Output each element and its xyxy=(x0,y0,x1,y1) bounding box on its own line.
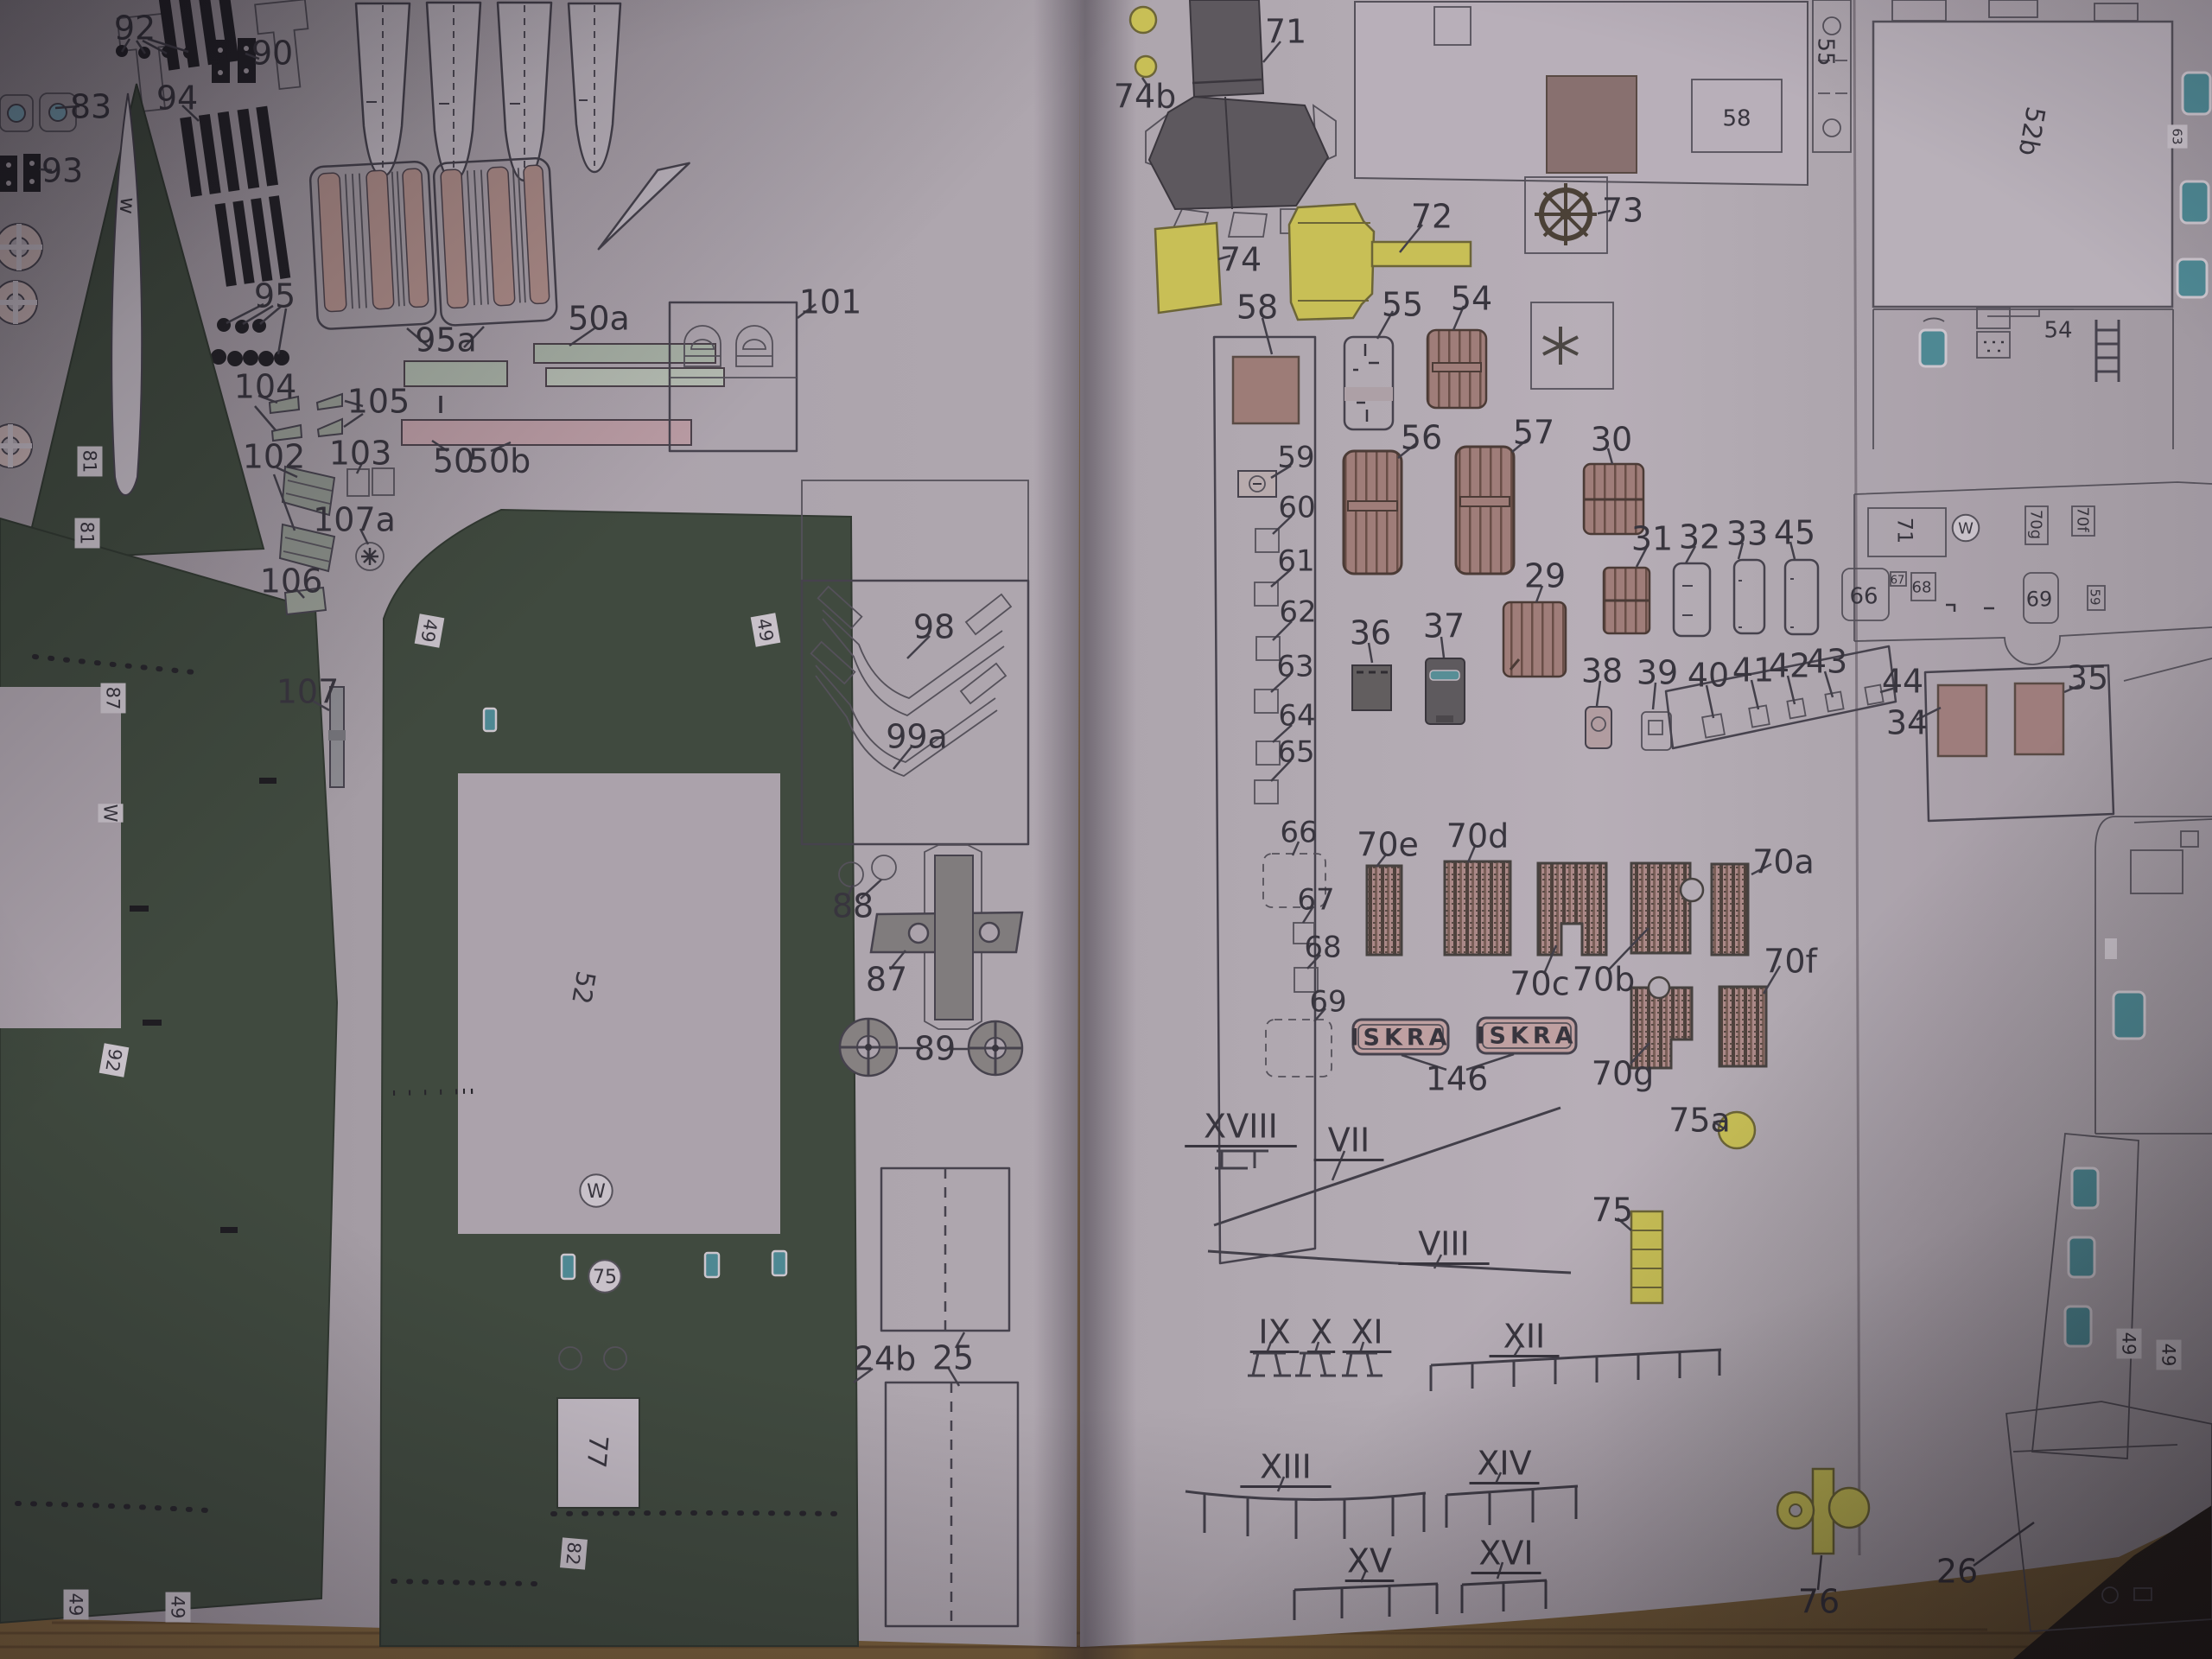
svg-text:146: 146 xyxy=(1426,1060,1489,1098)
svg-text:59: 59 xyxy=(1277,440,1314,474)
svg-text:W: W xyxy=(587,1181,606,1203)
part-label-56: 56 xyxy=(1401,419,1442,457)
svg-text:72: 72 xyxy=(1411,198,1452,236)
part-label-92: 92 xyxy=(99,1043,130,1077)
part-label-71: 71 xyxy=(1265,13,1306,51)
svg-text:77: 77 xyxy=(581,1433,613,1469)
part-label-24b: 24b xyxy=(854,1340,916,1378)
svg-text:VII: VII xyxy=(1328,1122,1370,1160)
part-label-52: 52 xyxy=(565,969,601,1007)
part-label-29: 29 xyxy=(1524,557,1566,595)
center-gutter-shadow xyxy=(1033,0,1137,1659)
svg-text:93: 93 xyxy=(41,152,83,190)
part-label-70d: 70d xyxy=(1446,817,1509,855)
part-label-70g: 70g xyxy=(2027,510,2045,539)
part-label-70f: 70f xyxy=(1764,943,1818,981)
part-label-69: 69 xyxy=(2026,588,2053,612)
svg-text:49: 49 xyxy=(65,1593,86,1617)
svg-text:57: 57 xyxy=(1513,414,1554,452)
part-label-82: 82 xyxy=(560,1537,588,1569)
part-label-30: 30 xyxy=(1591,421,1632,459)
svg-text:105: 105 xyxy=(347,383,410,421)
part-label-63: 63 xyxy=(1276,649,1313,683)
part-label-104: 104 xyxy=(234,368,297,406)
part-label-66: 66 xyxy=(1280,815,1317,849)
svg-text:92: 92 xyxy=(114,10,156,48)
part-label-37: 37 xyxy=(1423,607,1465,645)
part-label-55: 55 xyxy=(1813,37,1839,66)
svg-text:75a: 75a xyxy=(1669,1102,1731,1140)
part-label-40: 40 xyxy=(1688,657,1729,695)
svg-text:90: 90 xyxy=(251,35,293,73)
photo-of-model-kit-sheets: 92908393949595a104105102103106107107a50a… xyxy=(0,0,2212,1659)
part-label-58: 58 xyxy=(1236,289,1278,327)
svg-text:30: 30 xyxy=(1591,421,1632,459)
svg-text:70g: 70g xyxy=(1592,1055,1654,1093)
svg-text:35: 35 xyxy=(2067,659,2108,697)
svg-text:71: 71 xyxy=(1892,518,1916,544)
part-label-49: 49 xyxy=(166,1592,191,1623)
svg-text:104: 104 xyxy=(234,368,297,406)
part-56-door xyxy=(1344,451,1402,574)
svg-text:29: 29 xyxy=(1524,557,1566,595)
svg-text:XVIII: XVIII xyxy=(1204,1108,1278,1146)
part-label-34: 34 xyxy=(1886,704,1928,742)
part-label-66: 66 xyxy=(1849,583,1878,609)
part-label-106: 106 xyxy=(260,563,323,601)
part-label-57: 57 xyxy=(1513,414,1554,452)
svg-text:68: 68 xyxy=(1912,578,1932,596)
svg-text:XV: XV xyxy=(1347,1542,1392,1580)
svg-text:ISKRA: ISKRA xyxy=(1476,1023,1577,1050)
svg-text:50b: 50b xyxy=(468,442,531,480)
part-label-70c: 70c xyxy=(1510,965,1569,1003)
part-label-101: 101 xyxy=(799,283,862,321)
part-label-X: X xyxy=(1307,1313,1335,1352)
part-label-83: 83 xyxy=(70,88,111,126)
part-57-door xyxy=(1456,447,1514,574)
sheet-drawing: 92908393949595a104105102103106107107a50a… xyxy=(0,0,2212,1659)
far-right-windows-column-top xyxy=(2177,73,2210,297)
part-label-58: 58 xyxy=(1722,105,1751,131)
svg-text:60: 60 xyxy=(1278,490,1315,524)
part-label-26: 26 xyxy=(1936,1553,1978,1591)
part-label-98: 98 xyxy=(913,608,955,646)
svg-text:65: 65 xyxy=(1277,734,1314,769)
svg-text:103: 103 xyxy=(329,435,392,473)
part-label-44: 44 xyxy=(1882,663,1923,701)
part-label-107a: 107a xyxy=(313,501,396,539)
part-label-90: 90 xyxy=(251,35,293,73)
svg-text:95: 95 xyxy=(254,277,296,315)
svg-text:102: 102 xyxy=(243,438,306,476)
svg-text:24b: 24b xyxy=(854,1340,916,1378)
part-label-60: 60 xyxy=(1278,490,1315,524)
svg-text:75: 75 xyxy=(593,1267,617,1288)
svg-text:107: 107 xyxy=(276,673,340,711)
part-label-105: 105 xyxy=(347,383,410,421)
svg-text:66: 66 xyxy=(1849,583,1878,609)
svg-text:89: 89 xyxy=(914,1030,956,1068)
part-label-93: 93 xyxy=(41,152,83,190)
part-label-77: 77 xyxy=(581,1433,613,1469)
svg-text:87: 87 xyxy=(102,687,123,710)
svg-text:63: 63 xyxy=(2170,128,2185,144)
svg-text:95a: 95a xyxy=(415,321,477,359)
part-59-plate xyxy=(1238,471,1276,497)
part-label-55: 55 xyxy=(1382,286,1423,324)
svg-text:44: 44 xyxy=(1882,663,1923,701)
svg-text:49: 49 xyxy=(416,618,441,644)
part-75-stack xyxy=(1631,1211,1662,1303)
svg-text:40: 40 xyxy=(1688,657,1729,695)
svg-text:94: 94 xyxy=(156,79,198,118)
part-label-69: 69 xyxy=(1309,984,1346,1019)
part-label-59: 59 xyxy=(2088,588,2103,605)
svg-text:64: 64 xyxy=(1278,698,1315,733)
svg-text:81: 81 xyxy=(76,522,97,545)
part-label-74b: 74b xyxy=(1114,78,1176,116)
svg-text:69: 69 xyxy=(1309,984,1346,1019)
part-label-39: 39 xyxy=(1637,654,1678,692)
svg-text:70c: 70c xyxy=(1510,965,1569,1003)
part-label-76: 76 xyxy=(1798,1583,1840,1621)
svg-text:52: 52 xyxy=(565,969,601,1007)
part-label-62: 62 xyxy=(1279,594,1316,629)
deck-piece-52 xyxy=(380,510,858,1646)
svg-text:W: W xyxy=(1958,519,1974,537)
superstructure-sheet xyxy=(1355,2,1808,185)
part-36-box xyxy=(1352,665,1391,710)
svg-text:81: 81 xyxy=(79,450,99,474)
svg-text:w: w xyxy=(115,196,141,215)
svg-text:49: 49 xyxy=(753,617,777,643)
svg-text:VIII: VIII xyxy=(1418,1225,1470,1263)
svg-text:67: 67 xyxy=(1297,882,1334,917)
part-label-31: 31 xyxy=(1631,520,1673,558)
svg-text:49: 49 xyxy=(2158,1344,2178,1367)
svg-text:38: 38 xyxy=(1581,652,1623,690)
part-label-74: 74 xyxy=(1220,241,1262,279)
svg-text:101: 101 xyxy=(799,283,862,321)
svg-text:68: 68 xyxy=(1304,930,1341,964)
svg-text:74: 74 xyxy=(1220,241,1262,279)
svg-text:106: 106 xyxy=(260,563,323,601)
svg-text:70a: 70a xyxy=(1752,843,1815,881)
part-label-49: 49 xyxy=(64,1590,89,1620)
part-label-36: 36 xyxy=(1350,614,1391,652)
part-label-42: 42 xyxy=(1769,647,1810,685)
part-label-64: 64 xyxy=(1278,698,1315,733)
part-label-70f: 70f xyxy=(2074,506,2092,532)
part-label-103: 103 xyxy=(329,435,392,473)
svg-text:59: 59 xyxy=(2088,588,2103,605)
svg-text:70f: 70f xyxy=(2074,506,2092,532)
part-label-70a: 70a xyxy=(1752,843,1815,881)
part-29-hatch xyxy=(1503,602,1566,677)
part-label-49: 49 xyxy=(415,613,445,647)
part-label-59: 59 xyxy=(1277,440,1314,474)
svg-text:50a: 50a xyxy=(568,300,630,338)
svg-text:82: 82 xyxy=(562,1541,584,1567)
svg-text:92: 92 xyxy=(101,1047,125,1073)
part-label-54: 54 xyxy=(1451,280,1492,318)
svg-text:33: 33 xyxy=(1726,515,1768,553)
part-label-68: 68 xyxy=(1912,578,1932,596)
svg-text:58: 58 xyxy=(1722,105,1751,131)
part-label-25: 25 xyxy=(932,1339,974,1377)
part-label-XIV: XIV xyxy=(1470,1445,1540,1484)
part-label-65: 65 xyxy=(1277,734,1314,769)
part-31-hatch xyxy=(1604,568,1649,633)
part-label-146: 146 xyxy=(1426,1060,1489,1098)
part-label-95a: 95a xyxy=(415,321,477,359)
part-label-75a: 75a xyxy=(1669,1102,1731,1140)
svg-text:26: 26 xyxy=(1936,1553,1978,1591)
part-label-75: 75 xyxy=(588,1260,620,1292)
part-label-45: 45 xyxy=(1774,514,1815,552)
part-label-92: 92 xyxy=(114,10,156,48)
part-label-W: W xyxy=(1953,515,1980,542)
part-37-door xyxy=(1426,658,1465,724)
svg-text:69: 69 xyxy=(2026,588,2053,612)
part-label-88: 88 xyxy=(832,887,874,925)
part-label-54: 54 xyxy=(2044,317,2072,343)
part-label-ISKRA: ISKRA xyxy=(1476,1023,1577,1050)
svg-text:49: 49 xyxy=(2118,1332,2139,1356)
svg-text:83: 83 xyxy=(70,88,111,126)
svg-text:54: 54 xyxy=(1451,280,1492,318)
part-label-61: 61 xyxy=(1277,543,1314,578)
part-label-67: 67 xyxy=(1297,882,1334,917)
part-74-plate xyxy=(1155,223,1221,313)
part-label-87: 87 xyxy=(101,683,126,714)
svg-text:49: 49 xyxy=(167,1596,188,1619)
svg-text:67: 67 xyxy=(1891,575,1905,588)
part-label-75: 75 xyxy=(1592,1192,1633,1230)
svg-text:56: 56 xyxy=(1401,419,1442,457)
part-label-99a: 99a xyxy=(886,718,948,756)
svg-text:88: 88 xyxy=(832,887,874,925)
svg-text:34: 34 xyxy=(1886,704,1928,742)
svg-text:74b: 74b xyxy=(1114,78,1176,116)
part-label-107: 107 xyxy=(276,673,340,711)
part-label-32: 32 xyxy=(1679,518,1720,556)
svg-text:71: 71 xyxy=(1265,13,1306,51)
svg-text:107a: 107a xyxy=(313,501,396,539)
svg-text:X: X xyxy=(1310,1313,1332,1351)
part-label-70b: 70b xyxy=(1573,961,1635,999)
part-label-w: w xyxy=(115,196,141,215)
svg-text:70d: 70d xyxy=(1446,817,1509,855)
part-label-W: W xyxy=(580,1174,612,1206)
svg-text:66: 66 xyxy=(1280,815,1317,849)
part-label-87: 87 xyxy=(866,961,907,999)
svg-text:42: 42 xyxy=(1769,647,1810,685)
part-54-door xyxy=(1427,330,1486,408)
svg-text:70e: 70e xyxy=(1357,826,1419,864)
svg-text:75: 75 xyxy=(1592,1192,1633,1230)
svg-text:73: 73 xyxy=(1602,192,1643,230)
svg-text:XI: XI xyxy=(1351,1313,1382,1351)
part-label-50b: 50b xyxy=(468,442,531,480)
svg-text:37: 37 xyxy=(1423,607,1465,645)
part-label-67: 67 xyxy=(1891,575,1905,588)
part-label-ISKRA: ISKRA xyxy=(1350,1025,1451,1052)
svg-text:87: 87 xyxy=(866,961,907,999)
svg-text:62: 62 xyxy=(1279,594,1316,629)
svg-text:W: W xyxy=(99,804,120,823)
part-label-72: 72 xyxy=(1411,198,1452,236)
svg-text:31: 31 xyxy=(1631,520,1673,558)
svg-text:99a: 99a xyxy=(886,718,948,756)
svg-text:32: 32 xyxy=(1679,518,1720,556)
part-label-68: 68 xyxy=(1304,930,1341,964)
svg-text:36: 36 xyxy=(1350,614,1391,652)
part-label-49: 49 xyxy=(2157,1340,2182,1370)
part-label-XV: XV xyxy=(1345,1542,1395,1581)
svg-text:IX: IX xyxy=(1258,1313,1290,1351)
svg-text:XIV: XIV xyxy=(1477,1445,1531,1483)
svg-text:70g: 70g xyxy=(2027,510,2045,539)
svg-text:54: 54 xyxy=(2044,317,2072,343)
part-label-38: 38 xyxy=(1581,652,1623,690)
part-label-33: 33 xyxy=(1726,515,1768,553)
svg-text:55: 55 xyxy=(1813,37,1839,66)
part-label-102: 102 xyxy=(243,438,306,476)
part-label-94: 94 xyxy=(156,79,198,118)
svg-text:45: 45 xyxy=(1774,514,1815,552)
svg-text:61: 61 xyxy=(1277,543,1314,578)
part-label-W: W xyxy=(99,804,124,822)
part-label-73: 73 xyxy=(1602,192,1643,230)
svg-text:63: 63 xyxy=(1276,649,1313,683)
svg-text:XIII: XIII xyxy=(1260,1448,1312,1486)
svg-text:25: 25 xyxy=(932,1339,974,1377)
svg-text:76: 76 xyxy=(1798,1583,1840,1621)
svg-text:39: 39 xyxy=(1637,654,1678,692)
svg-text:XVI: XVI xyxy=(1478,1535,1533,1573)
part-label-49: 49 xyxy=(2117,1329,2142,1359)
part-label-70e: 70e xyxy=(1357,826,1419,864)
part-label-70g: 70g xyxy=(1592,1055,1654,1093)
svg-text:55: 55 xyxy=(1382,286,1423,324)
svg-text:43: 43 xyxy=(1806,643,1847,681)
svg-text:XII: XII xyxy=(1503,1318,1545,1356)
svg-text:ISKRA: ISKRA xyxy=(1350,1025,1451,1052)
part-label-35: 35 xyxy=(2067,659,2108,697)
svg-text:70b: 70b xyxy=(1573,961,1635,999)
svg-text:70f: 70f xyxy=(1764,943,1818,981)
part-label-XVI: XVI xyxy=(1471,1535,1541,1573)
svg-text:58: 58 xyxy=(1236,289,1278,327)
part-label-50a: 50a xyxy=(568,300,630,338)
part-label-81: 81 xyxy=(75,518,100,549)
part-label-81: 81 xyxy=(78,447,103,477)
part-label-95: 95 xyxy=(254,277,296,315)
part-label-71: 71 xyxy=(1892,518,1916,544)
part-label-43: 43 xyxy=(1806,643,1847,681)
part-label-89: 89 xyxy=(914,1030,956,1068)
part-label-49: 49 xyxy=(751,613,781,646)
part-label-63: 63 xyxy=(2168,124,2188,148)
svg-text:98: 98 xyxy=(913,608,955,646)
